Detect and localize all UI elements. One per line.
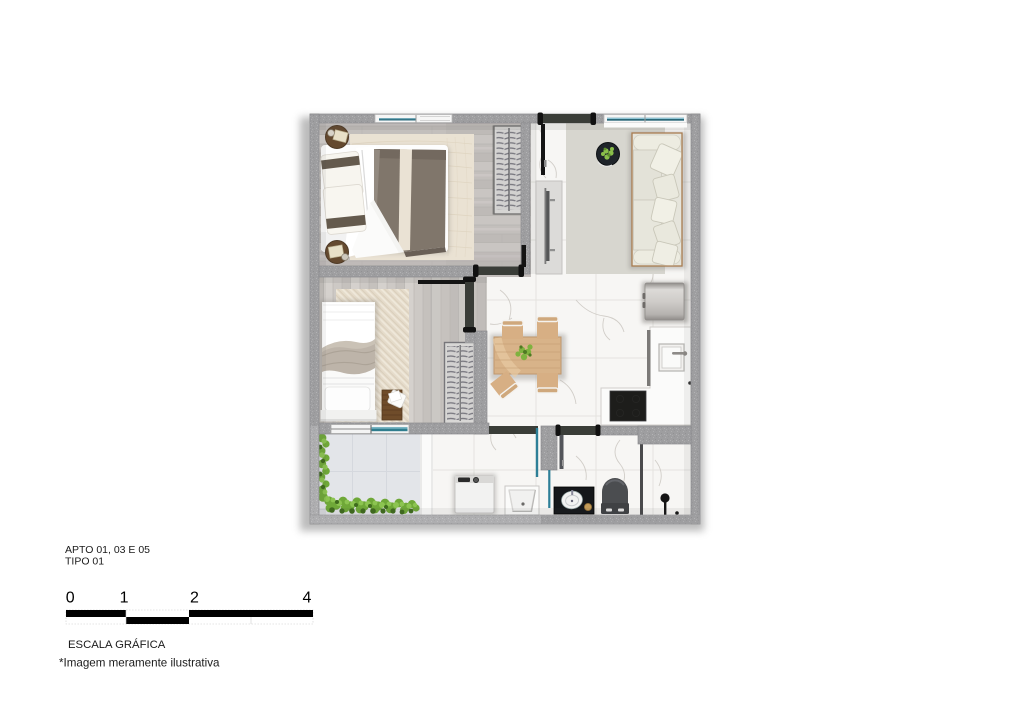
- svg-text:*Imagem meramente ilustrativa: *Imagem meramente ilustrativa: [59, 657, 220, 670]
- svg-text:2: 2: [190, 590, 199, 607]
- svg-text:0: 0: [66, 590, 75, 607]
- svg-text:1: 1: [120, 590, 129, 607]
- svg-text:APTO 01, 03 E 05: APTO 01, 03 E 05: [65, 544, 150, 556]
- svg-text:TIPO 01: TIPO 01: [65, 556, 104, 568]
- svg-text:ESCALA GRÁFICA: ESCALA GRÁFICA: [68, 638, 166, 651]
- svg-text:4: 4: [303, 590, 312, 607]
